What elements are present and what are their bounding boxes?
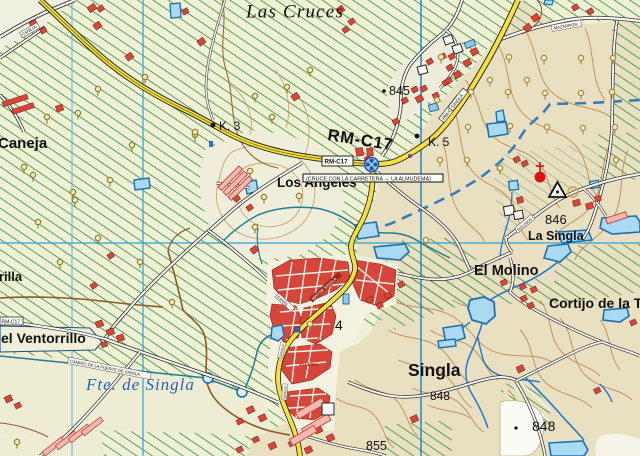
svg-text:Cortijo de la T: Cortijo de la T	[549, 295, 640, 311]
svg-text:El Molino: El Molino	[474, 263, 539, 279]
svg-text:RM-C17: RM-C17	[2, 319, 21, 325]
svg-text:Singla: Singla	[408, 360, 461, 380]
svg-text:Fte. de Singla: Fte. de Singla	[85, 375, 195, 394]
svg-text:rilla: rilla	[0, 269, 23, 284]
svg-text:846: 846	[545, 212, 567, 227]
svg-text:848: 848	[430, 389, 450, 403]
svg-text:el Ventorrillo: el Ventorrillo	[1, 330, 86, 346]
svg-text:K. 5: K. 5	[428, 135, 450, 149]
svg-text:Las Cruces: Las Cruces	[245, 2, 344, 23]
svg-text:845: 845	[389, 84, 410, 98]
svg-text:4: 4	[335, 317, 343, 333]
svg-text:848: 848	[532, 418, 556, 434]
svg-text:La Singla: La Singla	[528, 229, 585, 243]
svg-text:IGLESIA: IGLESIA	[300, 362, 319, 367]
svg-text:K. 3: K. 3	[219, 119, 241, 133]
svg-text:RM-C17: RM-C17	[325, 159, 349, 166]
svg-text:(CRUCE CON LA CARRETERA → LA A: (CRUCE CON LA CARRETERA → LA ALMUDEMA)	[306, 176, 431, 182]
svg-text:855: 855	[366, 439, 387, 453]
svg-text:Caneja: Caneja	[0, 135, 48, 152]
